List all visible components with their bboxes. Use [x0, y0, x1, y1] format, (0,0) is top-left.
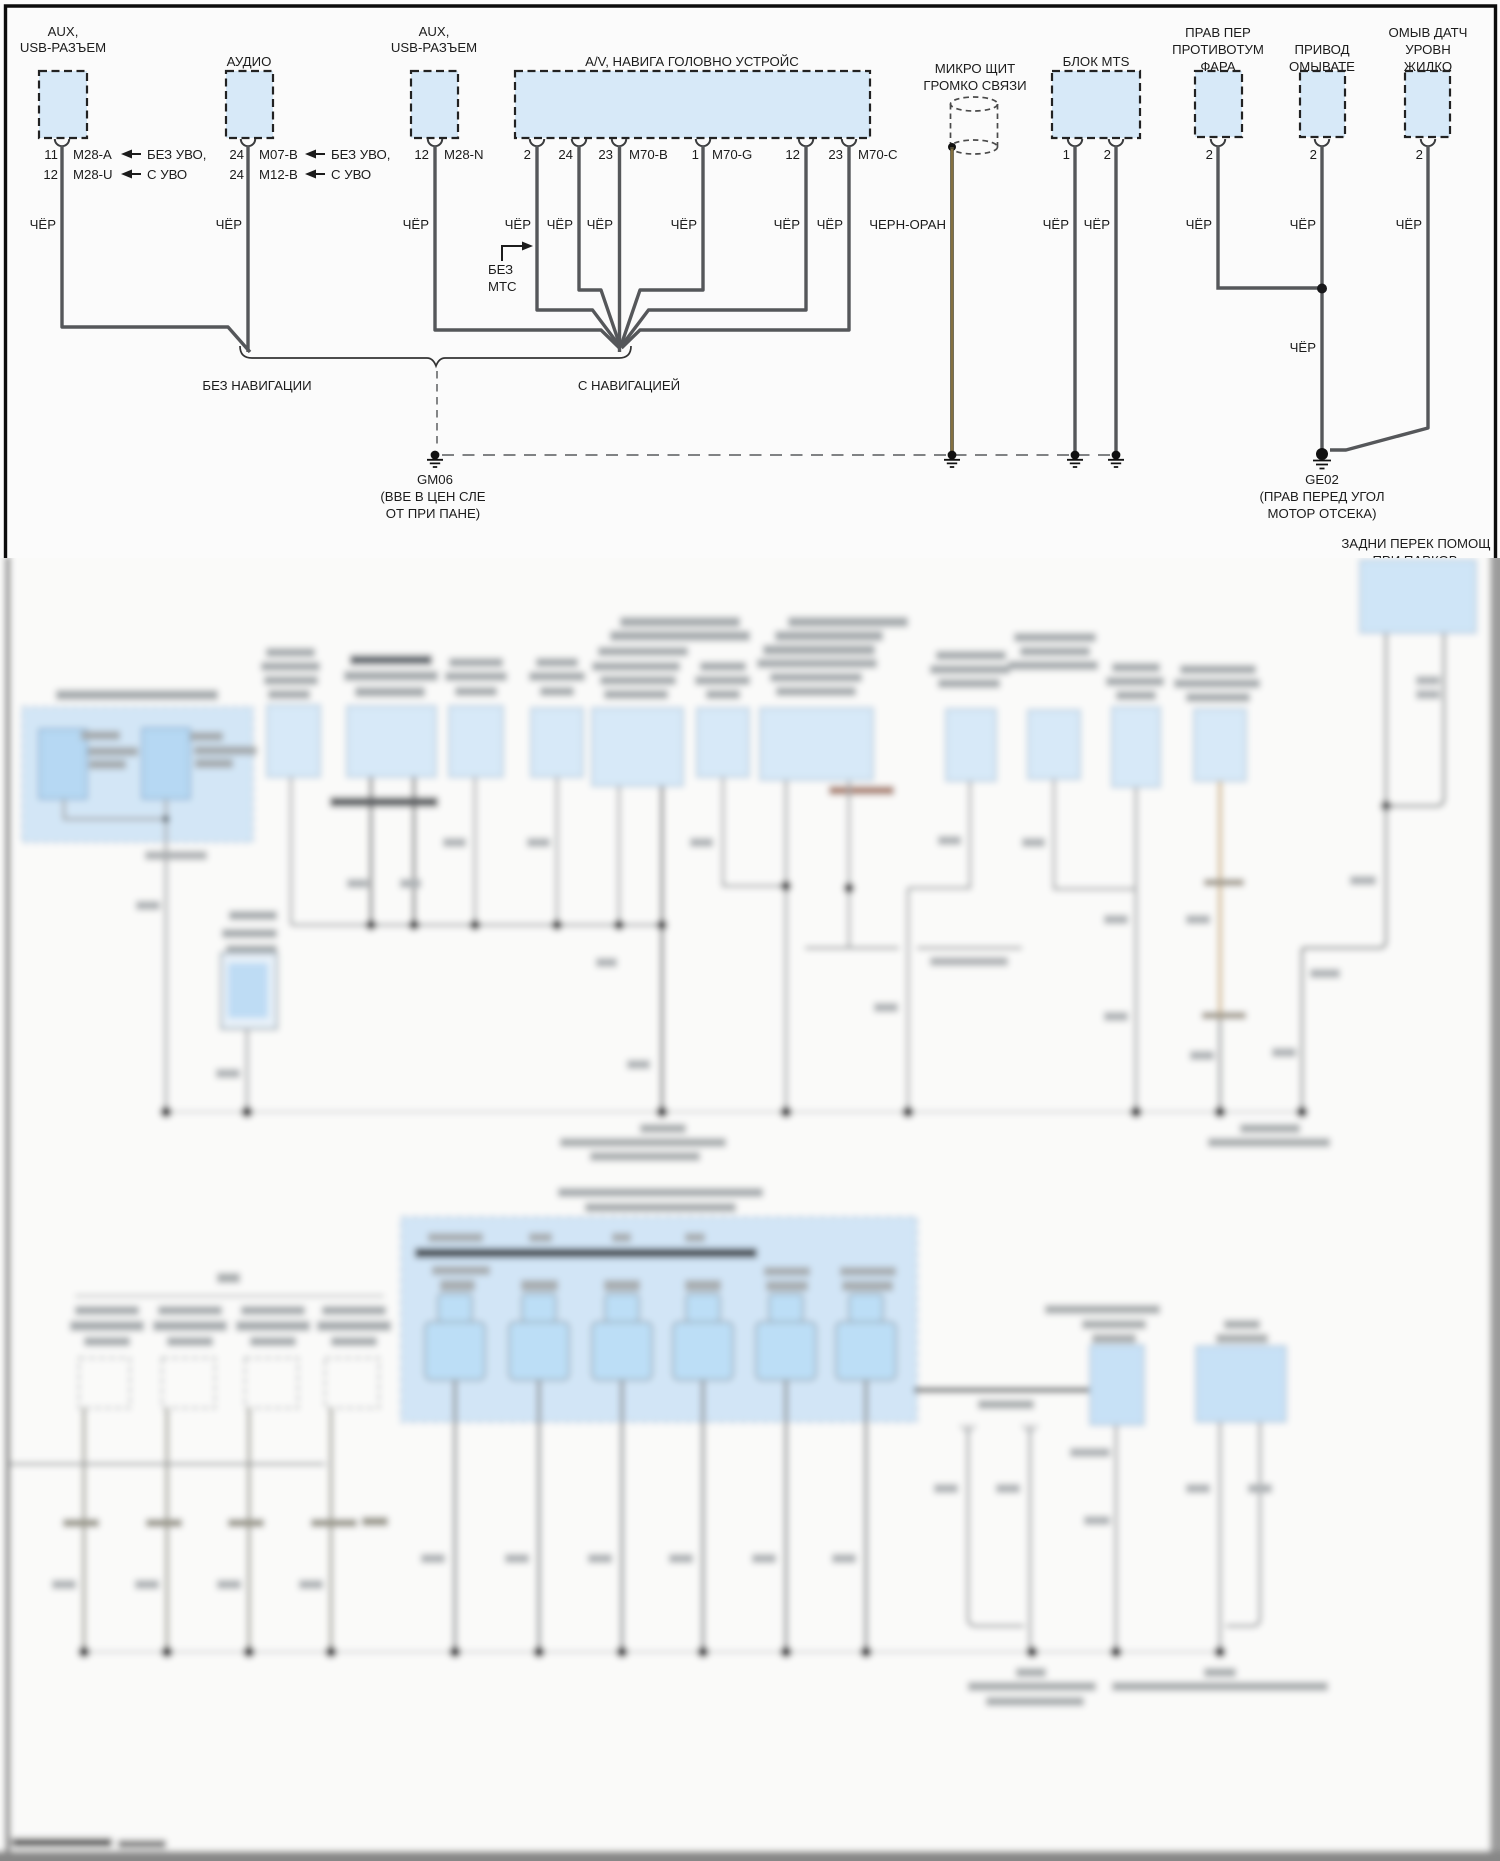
svg-text:(ПРАВ ПЕРЕД УГОЛ: (ПРАВ ПЕРЕД УГОЛ — [1259, 489, 1384, 504]
svg-text:ЧЁР: ЧЁР — [671, 217, 698, 232]
svg-text:БЕЗ НАВИГАЦИИ: БЕЗ НАВИГАЦИИ — [202, 378, 311, 393]
svg-text:МТС: МТС — [488, 279, 517, 294]
svg-text:USB-РАЗЪЕМ: USB-РАЗЪЕМ — [20, 40, 106, 55]
svg-text:24: 24 — [229, 167, 244, 182]
svg-text:A/V, НАВИГА ГОЛОВНО УСТРОЙС: A/V, НАВИГА ГОЛОВНО УСТРОЙС — [585, 54, 799, 69]
svg-text:M28-A: M28-A — [73, 147, 112, 162]
svg-text:M70-B: M70-B — [629, 147, 668, 162]
svg-text:ОМЫВ ДАТЧ: ОМЫВ ДАТЧ — [1389, 25, 1468, 40]
svg-text:GE02: GE02 — [1305, 472, 1339, 487]
svg-text:ЧЁР: ЧЁР — [1084, 217, 1111, 232]
svg-text:M70-G: M70-G — [712, 147, 752, 162]
svg-text:23: 23 — [598, 147, 613, 162]
svg-text:ЧЁР: ЧЁР — [1186, 217, 1213, 232]
svg-text:УРОВН: УРОВН — [1405, 42, 1450, 57]
svg-text:ЧЁР: ЧЁР — [505, 217, 532, 232]
svg-text:ЧЁР: ЧЁР — [1290, 217, 1317, 232]
svg-text:МОТОР ОТСЕКА): МОТОР ОТСЕКА) — [1268, 506, 1377, 521]
svg-text:ЧЁР: ЧЁР — [216, 217, 243, 232]
svg-text:БЕЗ УВО,: БЕЗ УВО, — [147, 147, 206, 162]
svg-text:2: 2 — [1416, 147, 1423, 162]
svg-text:23: 23 — [828, 147, 843, 162]
svg-text:ЧЕРН-ОРАН: ЧЕРН-ОРАН — [869, 217, 946, 232]
svg-text:M28-U: M28-U — [73, 167, 113, 182]
svg-text:M70-C: M70-C — [858, 147, 898, 162]
svg-text:M12-B: M12-B — [259, 167, 298, 182]
svg-text:1: 1 — [692, 147, 699, 162]
svg-text:ЗАДНИ ПЕРЕК ПОМОЩ: ЗАДНИ ПЕРЕК ПОМОЩ — [1341, 536, 1490, 551]
svg-text:ЧЁР: ЧЁР — [1043, 217, 1070, 232]
svg-text:2: 2 — [1206, 147, 1213, 162]
svg-text:AUX,: AUX, — [48, 24, 79, 39]
svg-text:12: 12 — [43, 167, 58, 182]
svg-text:С УВО: С УВО — [331, 167, 371, 182]
svg-text:11: 11 — [44, 147, 58, 162]
svg-text:МИКРО ЩИТ: МИКРО ЩИТ — [935, 61, 1015, 76]
svg-text:12: 12 — [785, 147, 800, 162]
svg-text:ПРОТИВОТУМ: ПРОТИВОТУМ — [1172, 42, 1264, 57]
svg-text:БЕЗ: БЕЗ — [488, 262, 513, 277]
svg-text:2: 2 — [1104, 147, 1111, 162]
svg-text:ПРАВ ПЕР: ПРАВ ПЕР — [1185, 25, 1251, 40]
svg-text:БЕЗ УВО,: БЕЗ УВО, — [331, 147, 390, 162]
svg-text:12: 12 — [414, 147, 429, 162]
svg-text:ЧЁР: ЧЁР — [1396, 217, 1423, 232]
svg-text:АУДИО: АУДИО — [227, 54, 272, 69]
svg-text:БЛОК MTS: БЛОК MTS — [1063, 54, 1130, 69]
svg-text:M07-B: M07-B — [259, 147, 298, 162]
svg-text:ЧЁР: ЧЁР — [774, 217, 801, 232]
svg-text:ПРИВОД: ПРИВОД — [1294, 42, 1349, 57]
svg-text:M28-N: M28-N — [444, 147, 484, 162]
svg-text:2: 2 — [1310, 147, 1317, 162]
svg-text:GM06: GM06 — [417, 472, 453, 487]
svg-text:ГРОМКО СВЯЗИ: ГРОМКО СВЯЗИ — [923, 78, 1026, 93]
svg-text:ЧЁР: ЧЁР — [587, 217, 614, 232]
svg-text:С УВО: С УВО — [147, 167, 187, 182]
svg-text:ЧЁР: ЧЁР — [30, 217, 57, 232]
svg-text:24: 24 — [558, 147, 573, 162]
svg-text:2: 2 — [524, 147, 531, 162]
svg-text:24: 24 — [229, 147, 244, 162]
svg-text:(ВВЕ В ЦЕН СЛЕ: (ВВЕ В ЦЕН СЛЕ — [380, 489, 485, 504]
svg-text:ОТ ПРИ ПАНЕ): ОТ ПРИ ПАНЕ) — [386, 506, 480, 521]
svg-text:ЧЁР: ЧЁР — [817, 217, 844, 232]
svg-text:ЧЁР: ЧЁР — [1290, 340, 1317, 355]
svg-text:ЧЁР: ЧЁР — [547, 217, 574, 232]
svg-text:USB-РАЗЪЕМ: USB-РАЗЪЕМ — [391, 40, 477, 55]
svg-text:С НАВИГАЦИЕЙ: С НАВИГАЦИЕЙ — [578, 378, 680, 393]
svg-text:1: 1 — [1063, 147, 1070, 162]
svg-text:ЧЁР: ЧЁР — [403, 217, 430, 232]
svg-text:AUX,: AUX, — [419, 24, 450, 39]
